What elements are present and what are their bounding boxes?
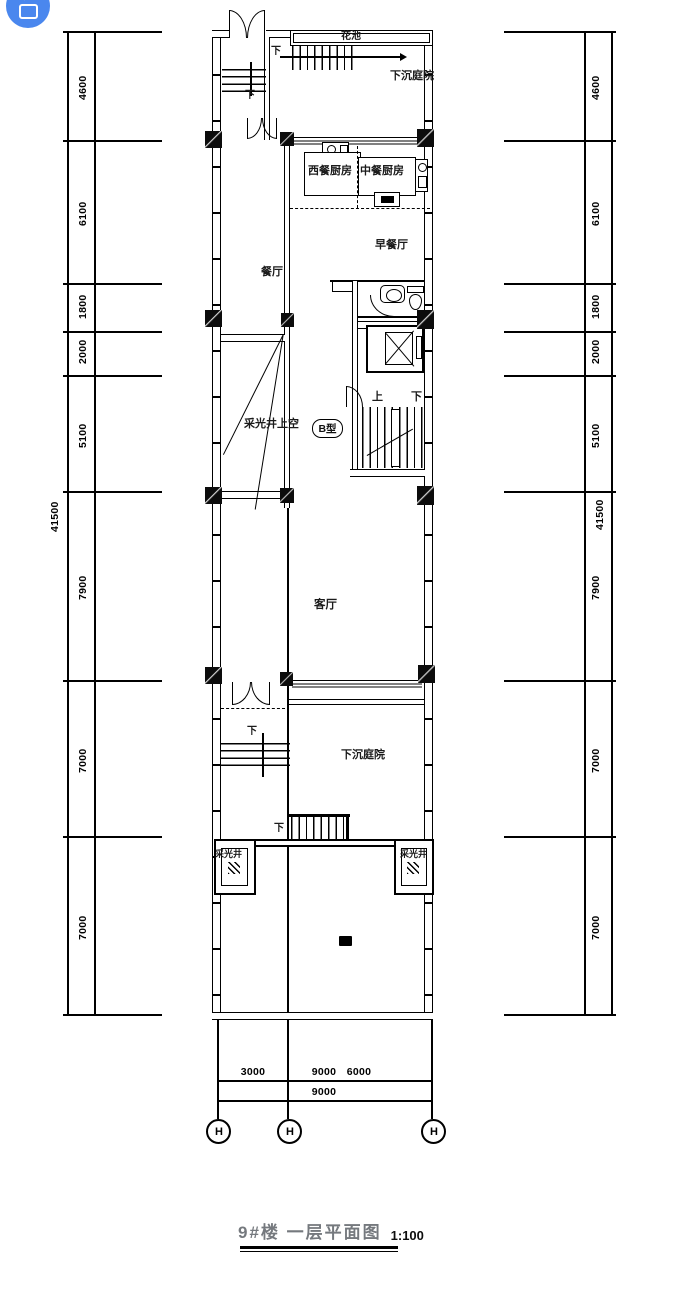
unit-type-badge: B型 xyxy=(312,419,343,438)
toilet-tank xyxy=(407,286,424,293)
dim-label: 6100 xyxy=(77,186,91,242)
elevator-x xyxy=(385,333,414,367)
elevator-door-slot xyxy=(416,336,422,359)
grid-bubble: H xyxy=(206,1119,231,1144)
toilet-bowl xyxy=(409,294,422,310)
entry-steps xyxy=(222,69,266,92)
kitchen-dashed-partition xyxy=(290,208,430,209)
up-label: 上 xyxy=(372,391,383,404)
dim-label: 7900 xyxy=(77,560,91,616)
elevator-x xyxy=(385,330,414,364)
room-label-light-well-right: 采光井 xyxy=(400,849,427,859)
share-arrow-icon: ↗ xyxy=(22,0,32,4)
dim-tick xyxy=(504,836,616,838)
dim-label: 4600 xyxy=(590,60,604,116)
step-arrow xyxy=(262,733,264,777)
down-label: 下 xyxy=(245,90,255,102)
share-button[interactable]: ↗ xyxy=(6,0,50,28)
left-chain-dim-line xyxy=(94,31,96,1015)
top-wall xyxy=(212,30,230,38)
light-well-wall xyxy=(221,334,285,342)
stair-wall xyxy=(350,469,425,477)
dim-tick xyxy=(504,140,616,142)
stair-arrowhead xyxy=(400,53,407,61)
dim-label: 7000 xyxy=(590,733,604,789)
dashed-threshold xyxy=(221,708,285,709)
bathroom-door-arc xyxy=(370,295,394,317)
dim-label: 6100 xyxy=(590,186,604,242)
bottom-dim-line xyxy=(217,1080,432,1082)
stair-treads xyxy=(292,45,354,70)
column xyxy=(417,129,434,147)
down-label: 下 xyxy=(271,46,281,58)
dim-label: 3000 xyxy=(233,1066,273,1078)
room-label-flower-bed: 花池 xyxy=(341,31,361,43)
light-well-diagonal xyxy=(223,334,284,455)
drawing-title: 9#楼 一层平面图 xyxy=(238,1218,382,1243)
dim-label: 5100 xyxy=(590,408,604,464)
dim-label: 9000 xyxy=(304,1086,344,1098)
dim-tick xyxy=(504,31,616,33)
column xyxy=(205,310,222,327)
dim-tick xyxy=(63,836,162,838)
entry-door-left-leaf xyxy=(229,10,247,38)
room-label-sunken-courtyard-bottom: 下沉庭院 xyxy=(341,749,385,762)
dim-total-label: 41500 xyxy=(594,480,608,550)
dim-label: 4600 xyxy=(77,60,91,116)
window-band-living xyxy=(292,680,422,690)
dim-label: 2000 xyxy=(590,328,604,376)
stair-arrow xyxy=(280,56,402,58)
dim-tick xyxy=(63,31,162,33)
dim-label: 1800 xyxy=(590,282,604,332)
dim-label: 5100 xyxy=(77,408,91,464)
dim-label: 7000 xyxy=(590,900,604,956)
hatch-icon xyxy=(228,862,240,874)
drawing-scale: 1:100 xyxy=(391,1228,424,1243)
column xyxy=(281,313,294,327)
room-label-west-kitchen: 西餐厨房 xyxy=(308,165,352,178)
column xyxy=(418,665,435,683)
column xyxy=(417,486,434,505)
dim-tick xyxy=(63,680,162,682)
down-label: 下 xyxy=(411,391,422,404)
window-band-kitchen xyxy=(292,137,420,147)
title-underline xyxy=(240,1251,398,1252)
stove xyxy=(415,159,428,192)
column xyxy=(417,310,434,329)
room-label-sunken-courtyard-top: 下沉庭院 xyxy=(390,70,434,83)
grid-extension-line xyxy=(217,1020,219,1119)
column xyxy=(280,488,294,503)
room-label-chinese-kitchen: 中餐厨房 xyxy=(360,165,404,178)
right-total-dim-line xyxy=(611,31,613,1015)
room-label-light-well-above: 采光井上空 xyxy=(244,418,299,431)
core-wall xyxy=(352,281,358,473)
column xyxy=(280,672,293,686)
dim-tick xyxy=(63,140,162,142)
garage-wall xyxy=(256,839,394,847)
dim-label: 7000 xyxy=(77,733,91,789)
elevator-cab xyxy=(385,332,413,365)
burner-icon xyxy=(418,163,427,172)
dim-tick xyxy=(63,491,162,493)
grid-bubble: H xyxy=(421,1119,446,1144)
grid-bubble: H xyxy=(277,1119,302,1144)
dim-total-label: 41500 xyxy=(49,482,63,552)
grid-extension-line xyxy=(287,1020,289,1119)
room-label-breakfast-room: 早餐厅 xyxy=(375,239,408,252)
exterior-steps xyxy=(220,743,290,769)
living-door-right-leaf xyxy=(251,682,270,705)
column xyxy=(280,132,294,146)
hatch-icon xyxy=(407,862,419,874)
dim-label: 9000 xyxy=(304,1066,344,1078)
share-tray-icon xyxy=(19,4,38,19)
dim-tick xyxy=(504,680,616,682)
room-label-living-room: 客厅 xyxy=(314,599,337,612)
room-label-dining-room: 餐厅 xyxy=(261,266,283,279)
left-total-dim-line xyxy=(67,31,69,1015)
bottom-wall xyxy=(212,1012,433,1020)
grid-extension-line xyxy=(431,1020,433,1119)
title-underline xyxy=(240,1246,398,1249)
stair-door-arc xyxy=(346,386,363,407)
flower-bed-inner xyxy=(293,33,430,43)
down-label: 下 xyxy=(247,726,257,738)
dim-label: 7900 xyxy=(590,560,604,616)
appliance-glyph xyxy=(381,196,394,203)
illegible-text-blob xyxy=(339,936,352,946)
dim-label: 6000 xyxy=(339,1066,379,1078)
flower-bed xyxy=(290,30,433,46)
light-well-wall xyxy=(221,491,285,499)
floor-plan-canvas: ↗ 4600 6100 1800 2000 5100 7900 7000 700… xyxy=(0,0,675,1313)
dim-tick xyxy=(504,1014,616,1016)
courtyard-wall xyxy=(288,699,425,705)
dim-label: 7000 xyxy=(77,900,91,956)
dim-label: 1800 xyxy=(77,282,91,332)
kitchen-dashed-partition xyxy=(357,146,358,208)
bottom-dim-line xyxy=(217,1100,432,1102)
column xyxy=(205,487,222,504)
right-chain-dim-line xyxy=(584,31,586,1015)
down-label: 下 xyxy=(274,823,284,835)
column xyxy=(205,131,222,148)
inner-door-left-leaf xyxy=(247,118,262,139)
dim-label: 2000 xyxy=(77,328,91,376)
dim-tick xyxy=(63,1014,162,1016)
stove-panel-icon xyxy=(418,176,427,188)
entry-door-right-leaf xyxy=(247,10,265,38)
room-label-light-well-left: 采光井 xyxy=(215,849,242,859)
title-block: 9#楼 一层平面图 1:100 xyxy=(238,1218,424,1243)
column xyxy=(205,667,222,684)
living-door-left-leaf xyxy=(232,682,251,705)
kitchen-appliance xyxy=(374,192,400,207)
